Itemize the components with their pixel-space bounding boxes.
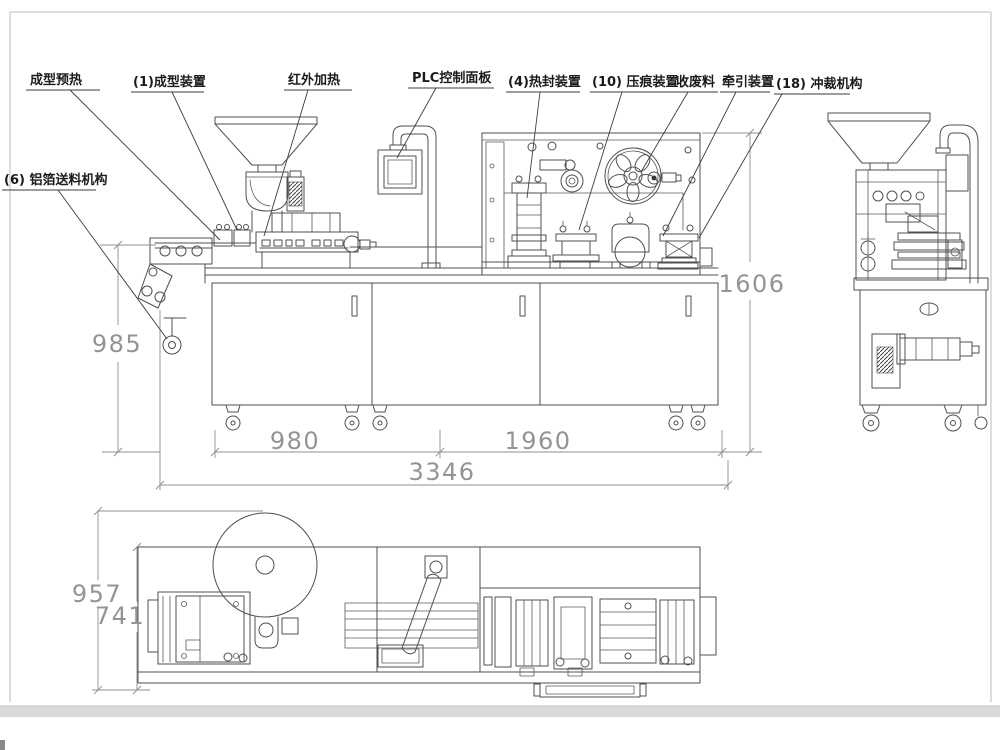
front-view [138, 117, 718, 430]
callout-forming-preheat-label: 成型预热 [30, 72, 82, 88]
dim-741: 741 [95, 602, 145, 630]
callout-foil-feed: (6) 铝箔送料机构 [2, 172, 167, 339]
callout-traction-device: 牵引装置 [663, 74, 774, 236]
plan-stations [480, 588, 716, 676]
plan-pivot [255, 617, 298, 648]
dimension-plan: 957 741 [72, 507, 263, 694]
callout-infrared-heating: 红外加热 [264, 72, 352, 236]
dimension-front-height: 985 [92, 241, 160, 456]
callout-foil-feed-label: (6) 铝箔送料机构 [4, 172, 107, 188]
dim-3346: 3346 [408, 458, 475, 486]
side-pipe [936, 125, 978, 283]
callout-indent-device: (10) 压痕装置 [579, 74, 679, 230]
hopper [215, 117, 317, 172]
callout-indent-device-label: (10) 压痕装置 [592, 74, 679, 90]
callout-plc-panel: PLC控制面板 [397, 70, 494, 158]
heat-seal-station [508, 176, 550, 268]
callout-traction-device-label: 牵引装置 [722, 74, 774, 90]
callout-forming-device: (1)成型装置 [131, 74, 237, 230]
drum-station [612, 212, 650, 268]
plan-forming-cluster [148, 592, 250, 664]
dim-985: 985 [92, 330, 142, 358]
indent-station [553, 221, 599, 268]
dimension-lengths: 980 1960 3346 [156, 310, 732, 490]
side-cabinet [854, 278, 988, 405]
side-view [828, 113, 988, 431]
sealing-section [482, 133, 700, 275]
callout-punching-mech-label: (18) 冲裁机构 [776, 76, 863, 92]
side-tower [856, 155, 968, 280]
waste-rewind-wheel [605, 148, 681, 204]
dim-980: 980 [270, 427, 320, 455]
callout-heat-seal-label: (4)热封装置 [508, 74, 581, 90]
plan-view [138, 513, 716, 697]
cabinet [205, 268, 718, 405]
dim-1960: 1960 [504, 427, 571, 455]
dim-1606: 1606 [718, 270, 785, 298]
page-frame [0, 12, 1000, 750]
callout-waste-collect-label: 收废料 [676, 74, 715, 90]
forming-device [214, 171, 482, 268]
plan-conveyor [378, 556, 447, 667]
plan-bottom-tab [534, 683, 646, 697]
callout-infrared-heating-label: 红外加热 [288, 72, 340, 88]
callout-forming-device-label: (1)成型装置 [133, 74, 206, 90]
foil-feeder [138, 238, 256, 354]
side-hopper [828, 113, 930, 170]
side-casters [862, 405, 987, 431]
dimension-right-height: 1606 [702, 129, 786, 456]
callout-plc-panel-label: PLC控制面板 [412, 70, 492, 86]
callout-punching-mech: (18) 冲裁机构 [699, 76, 863, 238]
callout-forming-preheat: 成型预热 [26, 72, 220, 240]
machine-drawing: 985 1606 980 1960 3346 957 741 成型预热 (1)成… [0, 0, 1000, 750]
callouts: 成型预热 (1)成型装置 红外加热 PLC控制面板 (4)热封装置 (10) 压… [2, 70, 863, 339]
